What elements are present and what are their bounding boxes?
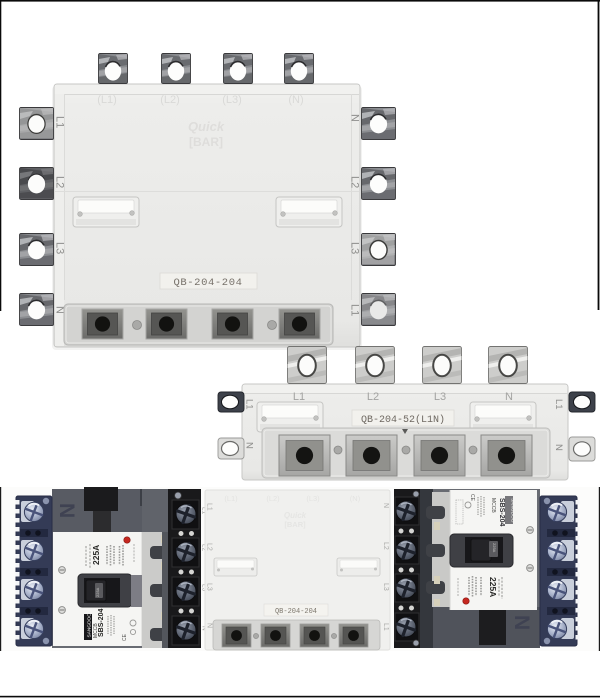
svg-text:L3: L3 [349,242,361,254]
svg-text:[BAR]: [BAR] [284,520,306,529]
svg-text:QB-204-204: QB-204-204 [275,608,317,616]
svg-text:(L3): (L3) [222,94,242,106]
svg-text:N: N [55,503,78,518]
svg-text:SBS-204: SBS-204 [498,498,505,527]
svg-text:L1: L1 [553,399,564,410]
svg-text:Quick: Quick [284,511,307,520]
svg-text:N: N [244,442,255,449]
svg-text:MCCB: MCCB [490,498,496,513]
svg-text:225A: 225A [488,577,498,597]
svg-text:L2: L2 [349,176,361,188]
svg-text:(L1): (L1) [97,94,117,106]
svg-text:(L2): (L2) [160,94,180,106]
svg-text:L3: L3 [54,242,66,254]
svg-text:L2: L2 [367,391,379,403]
svg-text:L1: L1 [244,399,255,410]
svg-text:L2: L2 [206,543,213,551]
svg-text:N: N [382,503,389,508]
svg-text:CE: CE [469,494,475,502]
svg-text:225A: 225A [95,587,100,597]
svg-text:L1: L1 [349,304,361,316]
svg-text:L1: L1 [206,503,213,511]
svg-text:N: N [553,444,564,451]
svg-text:L1: L1 [293,391,305,403]
svg-text:N: N [206,623,213,628]
svg-text:L3: L3 [382,583,389,591]
svg-text:[BAR]: [BAR] [189,135,223,149]
svg-text:L3: L3 [206,583,213,591]
svg-text:L1: L1 [54,116,66,128]
svg-text:225A: 225A [492,543,497,553]
svg-text:(N): (N) [288,94,303,106]
svg-text:(L2): (L2) [266,494,280,503]
svg-text:225A: 225A [91,545,101,565]
svg-text:(L1): (L1) [224,494,238,503]
svg-text:N: N [349,114,361,122]
svg-text:QB-204-52(L1N): QB-204-52(L1N) [361,414,445,426]
svg-text:SBS-204: SBS-204 [98,608,105,637]
svg-text:Quick: Quick [188,119,225,134]
svg-text:QB-204-204: QB-204-204 [173,277,242,289]
svg-text:SANGDOO: SANGDOO [87,613,93,638]
svg-text:SANGDOO: SANGDOO [510,498,516,523]
svg-text:N: N [505,391,513,403]
svg-text:L3: L3 [434,391,446,403]
svg-text:L2: L2 [382,542,389,550]
svg-text:(L3): (L3) [306,494,320,503]
svg-text:N: N [510,615,533,630]
svg-text:L2: L2 [54,176,66,188]
svg-text:L1: L1 [382,623,389,631]
svg-text:(N): (N) [350,494,361,503]
svg-text:CE: CE [122,633,128,641]
